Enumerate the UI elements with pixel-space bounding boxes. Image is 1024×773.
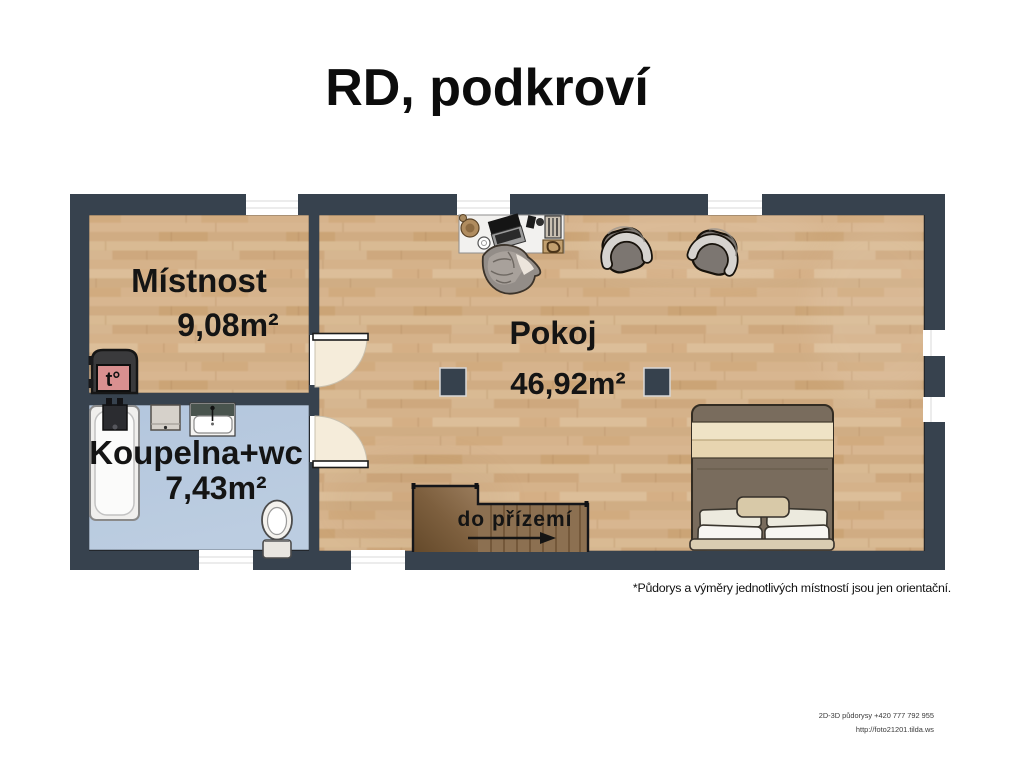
svg-text:Místnost: Místnost	[131, 262, 267, 299]
svg-text:http://foto21201.tilda.ws: http://foto21201.tilda.ws	[856, 725, 934, 734]
svg-text:RD, podkroví: RD, podkroví	[325, 59, 650, 117]
svg-text:do přízemí: do přízemí	[457, 508, 572, 531]
svg-text:Koupelna+wc: Koupelna+wc	[89, 434, 303, 471]
svg-text:9,08m²: 9,08m²	[177, 307, 278, 343]
svg-text:t°: t°	[106, 369, 121, 391]
svg-text:*Půdorys a výměry jednotlivých: *Půdorys a výměry jednotlivých místností…	[633, 581, 951, 595]
svg-text:46,92m²: 46,92m²	[510, 366, 625, 401]
svg-text:Pokoj: Pokoj	[509, 315, 596, 351]
svg-text:2D-3D půdorysy +420 777 792 95: 2D-3D půdorysy +420 777 792 955	[819, 711, 934, 720]
svg-text:7,43m²: 7,43m²	[165, 470, 266, 506]
